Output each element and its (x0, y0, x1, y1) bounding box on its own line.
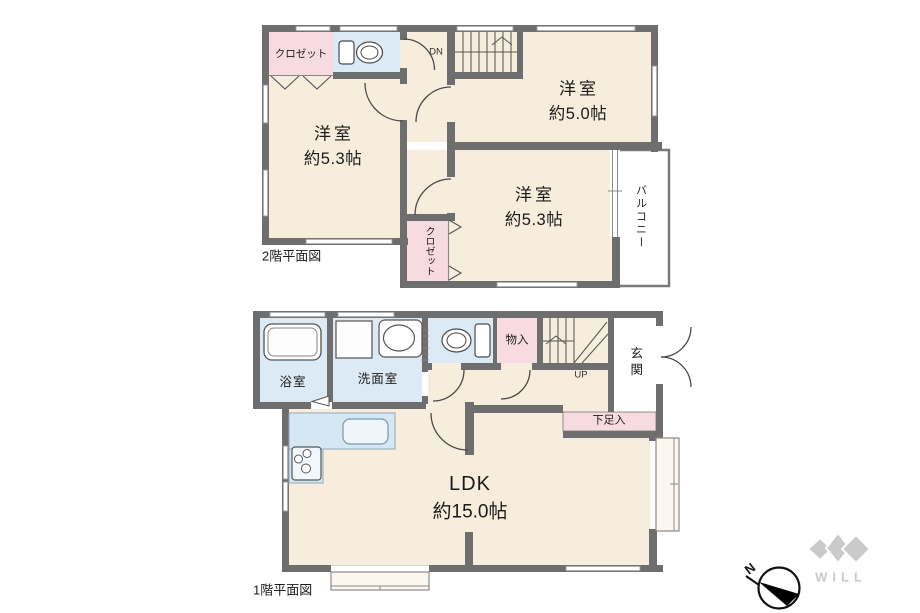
label-washroom: 洗面室 (358, 373, 399, 386)
label-stairs-up: UP (574, 370, 587, 380)
label-closet-2f-top: クロゼット (275, 49, 328, 60)
bay-window-right (650, 438, 679, 531)
label-balcony: バルコニー (635, 185, 646, 250)
label-room-mid-size: 約5.3帖 (505, 212, 563, 229)
floor2-title: 2階平面図 (262, 250, 321, 263)
label-room-left-name: 洋室 (314, 126, 354, 143)
compass-icon: N (742, 560, 800, 609)
washbasin-icon (379, 320, 422, 357)
bathtub-icon (264, 324, 321, 360)
toilet-icon-2f (339, 41, 383, 64)
washing-machine-icon (336, 321, 372, 358)
floor1-graphics (253, 311, 691, 590)
label-closet-2f-bottom: クロゼット (423, 226, 433, 276)
will-logo-text: WILL (815, 571, 867, 584)
bay-window-bottom (331, 565, 429, 590)
label-room-left-size: 約5.3帖 (304, 151, 362, 168)
label-stairs-dn: DN (429, 47, 443, 57)
compass-north-label: N (742, 560, 759, 578)
stove-icon (292, 447, 321, 480)
label-room-mid-name: 洋室 (515, 187, 555, 204)
label-shoe-storage: 下足入 (593, 416, 626, 427)
floor1-title: 1階平面図 (253, 584, 312, 597)
label-entrance: 玄関 (629, 347, 642, 380)
label-room-top-size: 約5.0帖 (549, 106, 607, 123)
label-ldk-size: 約15.0帖 (433, 503, 508, 522)
label-room-top-name: 洋室 (559, 81, 599, 98)
label-ldk-name: LDK (449, 474, 491, 494)
label-bath: 浴室 (279, 376, 306, 389)
sink-icon (343, 419, 388, 444)
will-logo-mark (808, 533, 870, 563)
floorplan-canvas: N クロゼット 洋室 約5.3帖 洋室 約5.0帖 洋室 約5.3帖 バルコニー… (0, 0, 920, 613)
label-storage: 物入 (506, 335, 529, 347)
